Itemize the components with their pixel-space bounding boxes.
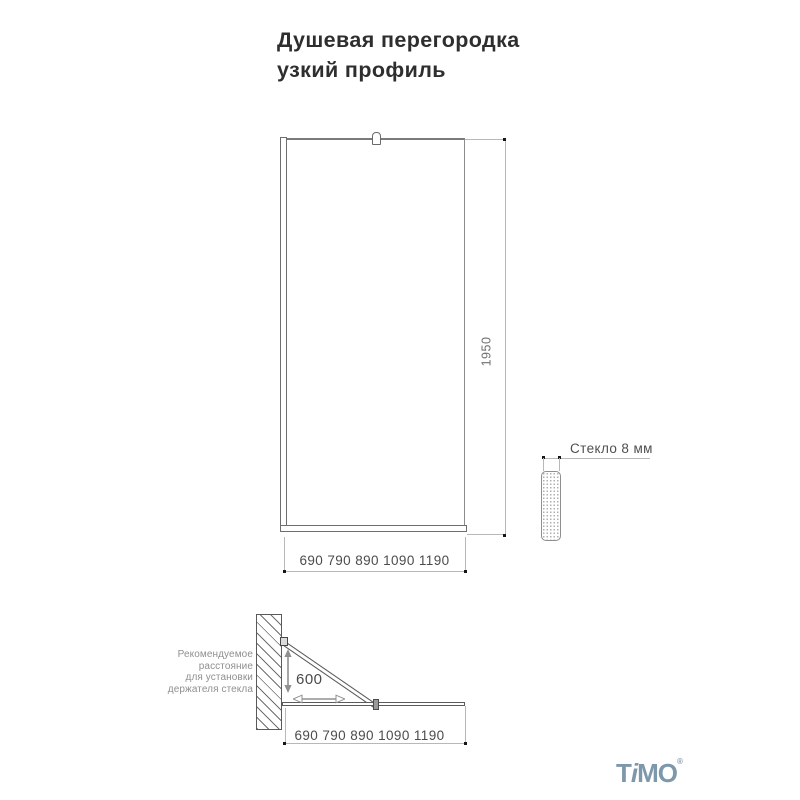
page-title-line2: узкий профиль: [277, 55, 520, 85]
page-title: Душевая перегородка узкий профиль: [277, 25, 520, 85]
height-dim-line: [505, 139, 506, 535]
height-dim-ext-top: [465, 139, 505, 140]
install-note-line: для установки: [160, 672, 253, 684]
install-note-line: Рекомендуемое: [160, 649, 253, 661]
page-title-line1: Душевая перегородка: [277, 25, 520, 55]
dim-dot: [503, 534, 506, 537]
width-dim-label: 690 790 890 1090 1190: [284, 553, 465, 568]
glass-right-edge: [464, 139, 466, 527]
top-glass-bracket: [372, 132, 381, 145]
install-note-line: держателя стекла: [160, 684, 253, 696]
vertical-range-arrow-icon: [282, 649, 294, 693]
horizontal-range-arrow-icon: [293, 693, 345, 705]
wall-hatch: [256, 614, 282, 730]
dim-dot: [464, 742, 467, 745]
dim-dot: [503, 138, 506, 141]
glass-holder-clamp: [373, 699, 379, 710]
brand-logo: TiMO®: [616, 757, 683, 789]
dim-dot: [283, 570, 286, 573]
distance-600-label: 600: [296, 671, 323, 688]
install-note-line: расстояние: [160, 661, 253, 673]
glass-thickness-label: Стекло 8 мм: [570, 441, 653, 456]
plan-width-dim-label: 690 790 890 1090 1190: [279, 728, 460, 743]
brand-logo-letter: T: [616, 758, 631, 788]
glass-thickness-ext-right: [559, 458, 560, 471]
install-note: Рекомендуемое расстояние для установки д…: [160, 649, 253, 695]
left-wall-profile: [280, 137, 287, 527]
brand-logo-reg-mark: ®: [677, 757, 683, 766]
height-dim-ext-bottom: [467, 534, 505, 535]
drawing-canvas: Душевая перегородка узкий профиль 1950 6…: [0, 0, 800, 800]
bottom-profile-bar: [280, 525, 467, 532]
width-dim-line: [284, 571, 465, 572]
height-dim-label: 1950: [480, 331, 495, 373]
wall-bracket: [280, 637, 288, 646]
brand-logo-letter: MO: [637, 758, 677, 788]
glass-cross-section: [541, 471, 561, 541]
dim-dot: [464, 570, 467, 573]
glass-thickness-ext-left: [543, 458, 544, 471]
plan-width-dim-ext-right: [465, 706, 466, 743]
